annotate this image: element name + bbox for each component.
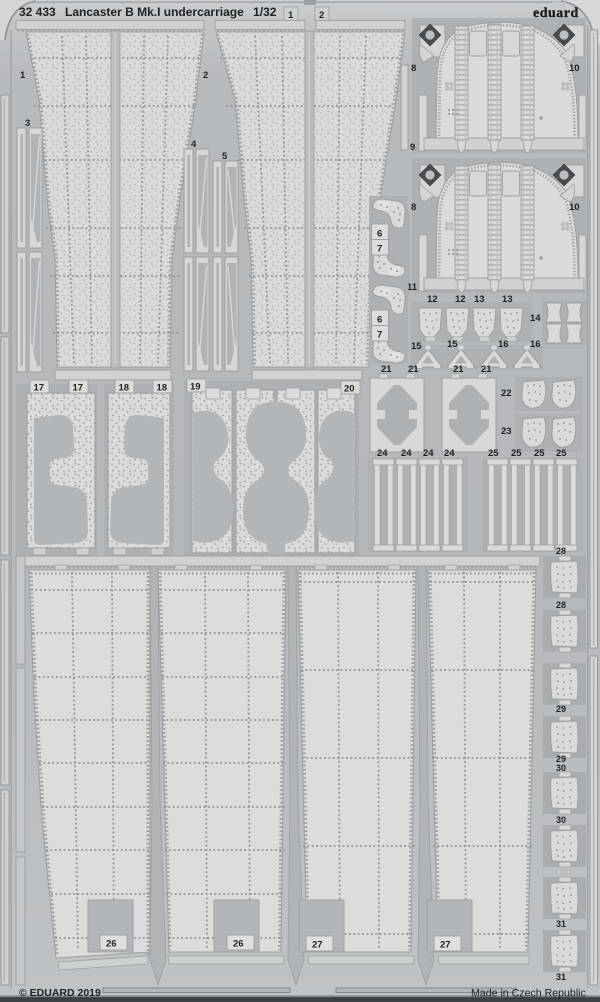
svg-text:18: 18	[157, 383, 168, 394]
svg-text:22: 22	[501, 388, 512, 399]
svg-text:4: 4	[191, 139, 197, 150]
svg-text:6: 6	[377, 229, 382, 240]
svg-text:7: 7	[377, 244, 382, 255]
svg-text:16: 16	[530, 339, 541, 350]
svg-text:29: 29	[556, 704, 566, 714]
svg-text:24: 24	[423, 448, 434, 459]
svg-text:7: 7	[377, 330, 382, 341]
svg-text:26: 26	[233, 939, 244, 950]
svg-text:3: 3	[25, 118, 30, 129]
svg-text:© EDUARD 2019: © EDUARD 2019	[19, 987, 101, 999]
svg-text:13: 13	[474, 294, 485, 305]
svg-text:30: 30	[556, 815, 566, 825]
svg-text:27: 27	[440, 940, 451, 951]
svg-text:15: 15	[447, 339, 458, 350]
svg-text:1: 1	[20, 70, 26, 81]
svg-text:14: 14	[530, 313, 541, 324]
svg-text:25: 25	[488, 448, 499, 459]
svg-text:27: 27	[312, 940, 323, 951]
svg-text:8: 8	[411, 202, 416, 213]
svg-text:18: 18	[119, 383, 130, 394]
svg-text:24: 24	[444, 448, 455, 459]
svg-text:12: 12	[427, 294, 438, 305]
svg-text:31: 31	[556, 919, 566, 929]
svg-text:10: 10	[569, 202, 580, 213]
svg-text:15: 15	[411, 341, 422, 352]
svg-text:17: 17	[34, 383, 45, 394]
svg-text:32 433 Lancaster B Mk.I under: 32 433 Lancaster B Mk.I undercarriage 1/…	[19, 5, 277, 19]
svg-text:26: 26	[106, 939, 117, 950]
svg-text:2: 2	[203, 70, 208, 81]
svg-text:16: 16	[498, 339, 509, 350]
svg-text:20: 20	[344, 384, 355, 395]
svg-text:13: 13	[502, 294, 513, 305]
svg-text:8: 8	[411, 63, 416, 74]
svg-text:25: 25	[534, 448, 545, 459]
svg-text:24: 24	[377, 448, 388, 459]
svg-text:10: 10	[569, 63, 580, 74]
svg-text:19: 19	[190, 382, 201, 393]
svg-text:11: 11	[407, 282, 418, 293]
svg-text:17: 17	[73, 383, 84, 394]
svg-text:31: 31	[556, 972, 566, 982]
svg-text:1: 1	[288, 10, 294, 21]
svg-text:5: 5	[222, 151, 228, 162]
svg-text:23: 23	[501, 426, 512, 437]
svg-text:28: 28	[556, 546, 566, 556]
svg-text:9: 9	[410, 142, 415, 153]
svg-text:30: 30	[556, 763, 566, 773]
svg-text:2: 2	[319, 10, 324, 21]
svg-text:12: 12	[455, 294, 466, 305]
svg-text:Made in Czech Republic: Made in Czech Republic	[471, 988, 587, 1000]
svg-text:25: 25	[556, 448, 567, 459]
svg-text:6: 6	[377, 315, 382, 326]
svg-text:24: 24	[401, 448, 412, 459]
svg-text:28: 28	[556, 600, 566, 610]
svg-text:25: 25	[511, 448, 522, 459]
